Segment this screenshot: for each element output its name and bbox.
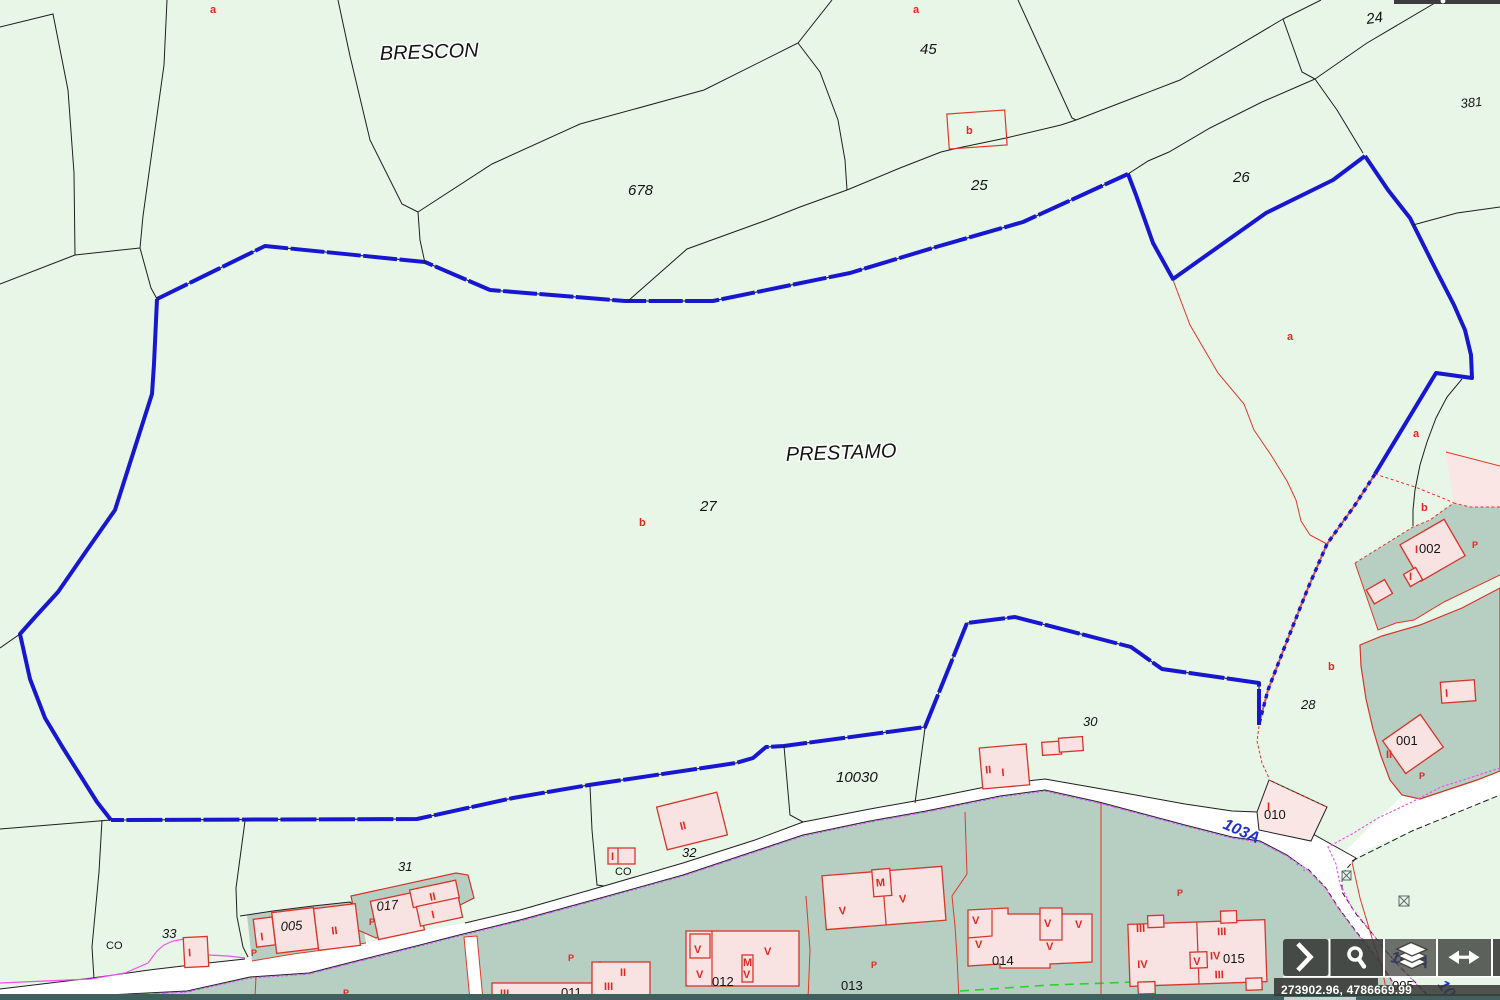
svg-text:P: P bbox=[251, 948, 257, 958]
svg-text:III: III bbox=[1214, 969, 1224, 981]
svg-text:P: P bbox=[568, 953, 574, 963]
svg-text:25: 25 bbox=[970, 177, 988, 194]
svg-text:27: 27 bbox=[699, 498, 717, 515]
svg-text:017: 017 bbox=[376, 897, 400, 914]
svg-text:I: I bbox=[1267, 801, 1270, 813]
svg-text:a: a bbox=[1287, 331, 1294, 343]
svg-text:P: P bbox=[1472, 540, 1478, 550]
svg-text:013: 013 bbox=[841, 978, 863, 993]
svg-text:V: V bbox=[972, 915, 980, 927]
svg-text:M: M bbox=[743, 957, 752, 969]
svg-text:30: 30 bbox=[1083, 714, 1098, 729]
svg-text:a: a bbox=[1413, 428, 1420, 440]
svg-text:b: b bbox=[966, 125, 973, 137]
svg-text:381: 381 bbox=[1460, 94, 1483, 111]
svg-text:002: 002 bbox=[1419, 541, 1441, 556]
svg-text:P: P bbox=[1419, 771, 1425, 781]
svg-text:014: 014 bbox=[992, 953, 1014, 968]
svg-text:III: III bbox=[1217, 926, 1227, 938]
svg-text:45: 45 bbox=[920, 41, 937, 58]
svg-text:III: III bbox=[1136, 923, 1146, 935]
svg-text:V: V bbox=[743, 969, 751, 981]
svg-text:10030: 10030 bbox=[836, 769, 878, 786]
svg-text:28: 28 bbox=[1300, 697, 1316, 712]
svg-text:II: II bbox=[620, 967, 626, 979]
svg-text:a: a bbox=[210, 4, 217, 16]
svg-text:V: V bbox=[1044, 918, 1052, 930]
svg-text:V: V bbox=[975, 939, 983, 951]
svg-text:33: 33 bbox=[162, 926, 177, 941]
svg-text:015: 015 bbox=[1223, 951, 1245, 966]
svg-text:PRESTAMO: PRESTAMO bbox=[785, 440, 896, 466]
svg-text:I: I bbox=[1415, 544, 1418, 556]
svg-text:P: P bbox=[1177, 888, 1183, 898]
svg-text:I: I bbox=[188, 947, 192, 959]
svg-text:31: 31 bbox=[398, 859, 412, 874]
svg-text:III: III bbox=[604, 981, 613, 993]
svg-text:005: 005 bbox=[280, 917, 303, 934]
svg-text:24: 24 bbox=[1364, 9, 1384, 28]
svg-text:II: II bbox=[985, 764, 992, 776]
svg-text:BRESCON: BRESCON bbox=[379, 40, 479, 65]
svg-text:273902.96, 4786669.99: 273902.96, 4786669.99 bbox=[1281, 983, 1412, 997]
svg-text:II: II bbox=[1386, 749, 1392, 761]
svg-text:P: P bbox=[871, 960, 877, 970]
svg-text:CO: CO bbox=[106, 940, 123, 952]
svg-text:b: b bbox=[1328, 661, 1335, 673]
svg-text:V: V bbox=[696, 969, 704, 981]
svg-text:26: 26 bbox=[1232, 169, 1250, 186]
svg-text:012: 012 bbox=[712, 974, 734, 989]
svg-text:P: P bbox=[369, 917, 375, 927]
svg-text:001: 001 bbox=[1396, 733, 1418, 748]
svg-text:a: a bbox=[913, 4, 920, 16]
svg-text:IV: IV bbox=[1137, 959, 1148, 971]
svg-text:V: V bbox=[1193, 956, 1201, 968]
svg-text:V: V bbox=[694, 944, 702, 956]
svg-text:678: 678 bbox=[628, 182, 654, 199]
svg-text:b: b bbox=[1421, 502, 1428, 514]
svg-text:b: b bbox=[639, 517, 646, 529]
svg-text:I: I bbox=[611, 851, 614, 863]
svg-text:32: 32 bbox=[682, 845, 697, 860]
svg-text:V: V bbox=[764, 946, 772, 958]
svg-text:M: M bbox=[875, 877, 885, 890]
svg-text:V: V bbox=[1075, 919, 1083, 931]
svg-text:IV: IV bbox=[1210, 950, 1221, 962]
svg-text:CO: CO bbox=[615, 866, 632, 878]
svg-text:I: I bbox=[1409, 571, 1412, 583]
svg-text:V: V bbox=[1046, 941, 1054, 953]
